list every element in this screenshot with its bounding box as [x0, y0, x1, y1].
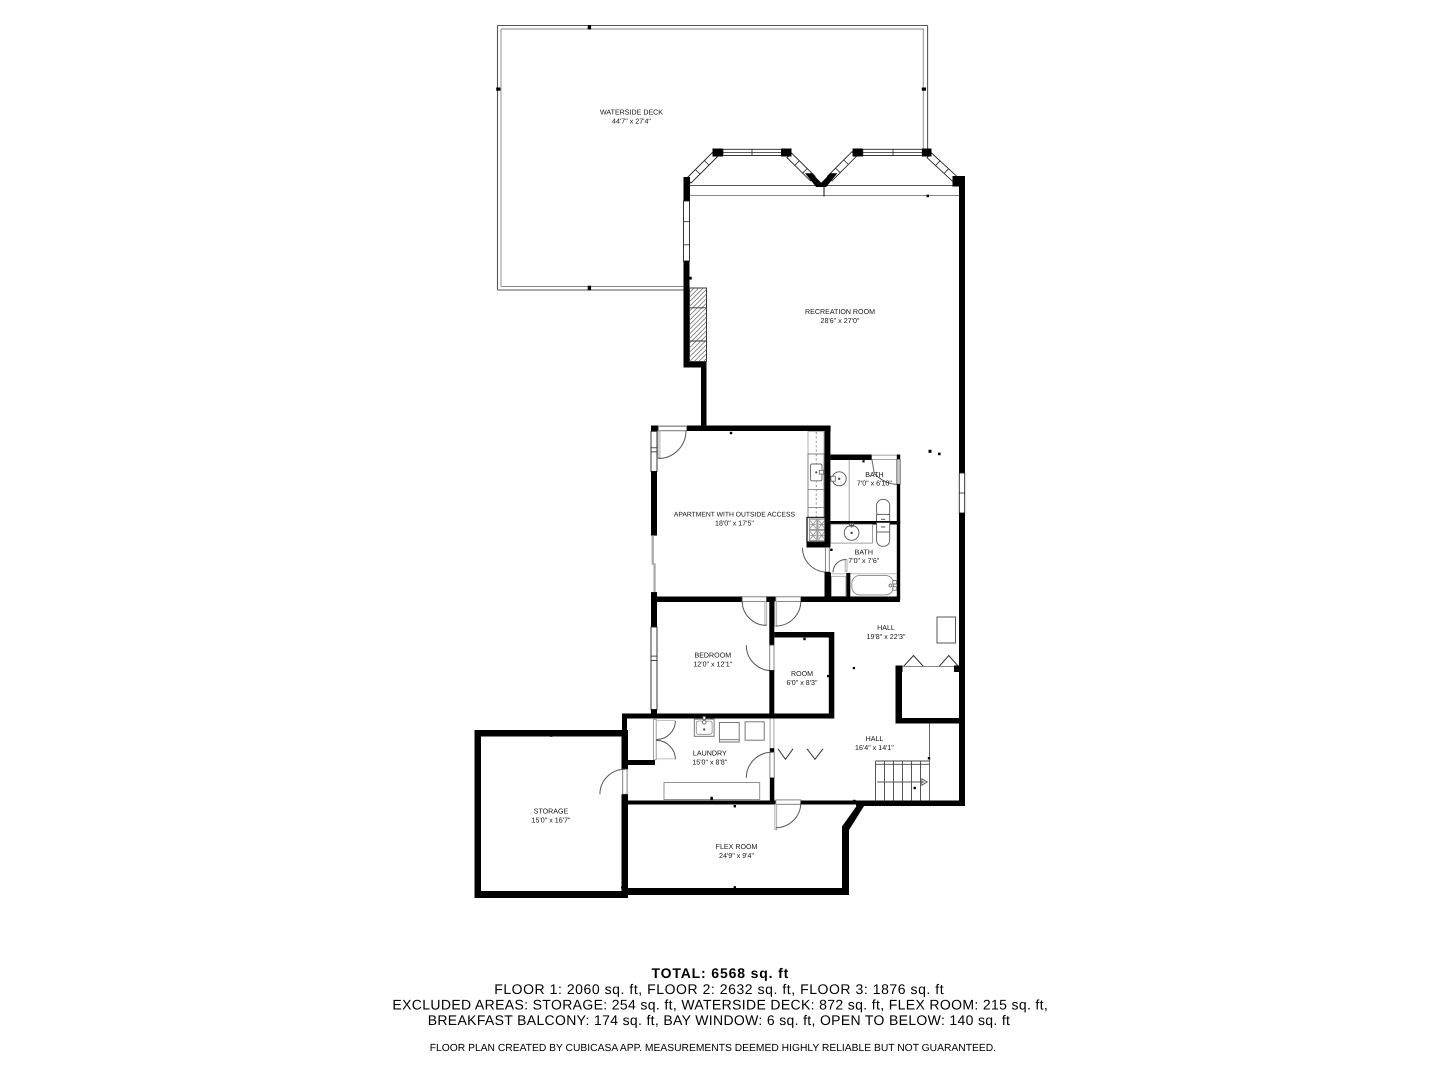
svg-text:BATH: BATH	[865, 471, 883, 479]
svg-text:FLOOR PLAN CREATED BY CUBICASA: FLOOR PLAN CREATED BY CUBICASA APP. MEAS…	[430, 1043, 996, 1054]
svg-text:LAUNDRY: LAUNDRY	[693, 750, 727, 758]
svg-text:18'0" x 17'5": 18'0" x 17'5"	[715, 519, 754, 527]
svg-text:BREAKFAST BALCONY: 174 sq. ft,: BREAKFAST BALCONY: 174 sq. ft, BAY WINDO…	[428, 1012, 1011, 1028]
svg-text:24'9" x 9'4": 24'9" x 9'4"	[719, 852, 754, 860]
svg-text:EXCLUDED AREAS: STORAGE: 254 s: EXCLUDED AREAS: STORAGE: 254 sq. ft, WAT…	[392, 997, 1048, 1013]
svg-text:TOTAL: 6568 sq. ft: TOTAL: 6568 sq. ft	[651, 965, 789, 981]
svg-text:FLOOR 1: 2060 sq. ft, FLOOR 2:: FLOOR 1: 2060 sq. ft, FLOOR 2: 2632 sq. …	[494, 981, 944, 997]
svg-text:28'6" x 27'0": 28'6" x 27'0"	[821, 317, 860, 325]
svg-text:HALL: HALL	[866, 735, 884, 743]
svg-text:7'0" x 7'6": 7'0" x 7'6"	[848, 557, 879, 565]
svg-text:6'0" x 8'3": 6'0" x 8'3"	[786, 679, 817, 687]
svg-text:19'8" x 22'3": 19'8" x 22'3"	[867, 633, 906, 641]
svg-text:FLEX ROOM: FLEX ROOM	[716, 843, 758, 851]
svg-text:APARTMENT WITH OUTSIDE ACCESS: APARTMENT WITH OUTSIDE ACCESS	[674, 511, 796, 518]
svg-text:44'7" x 27'4": 44'7" x 27'4"	[612, 118, 651, 126]
svg-text:15'0" x 16'7": 15'0" x 16'7"	[532, 816, 571, 824]
svg-text:HALL: HALL	[877, 624, 895, 632]
svg-text:7'0" x 6'10": 7'0" x 6'10"	[857, 480, 892, 488]
svg-text:12'0" x 12'1": 12'0" x 12'1"	[693, 660, 732, 668]
svg-text:BEDROOM: BEDROOM	[694, 652, 731, 660]
svg-text:16'4" x 14'1": 16'4" x 14'1"	[855, 744, 894, 752]
svg-text:RECREATION ROOM: RECREATION ROOM	[805, 308, 875, 316]
svg-text:BATH: BATH	[855, 549, 873, 557]
svg-text:WATERSIDE DECK: WATERSIDE DECK	[600, 109, 663, 117]
svg-text:ROOM: ROOM	[791, 670, 813, 678]
svg-text:STORAGE: STORAGE	[534, 808, 569, 816]
svg-text:15'0" x 8'8": 15'0" x 8'8"	[692, 758, 727, 766]
